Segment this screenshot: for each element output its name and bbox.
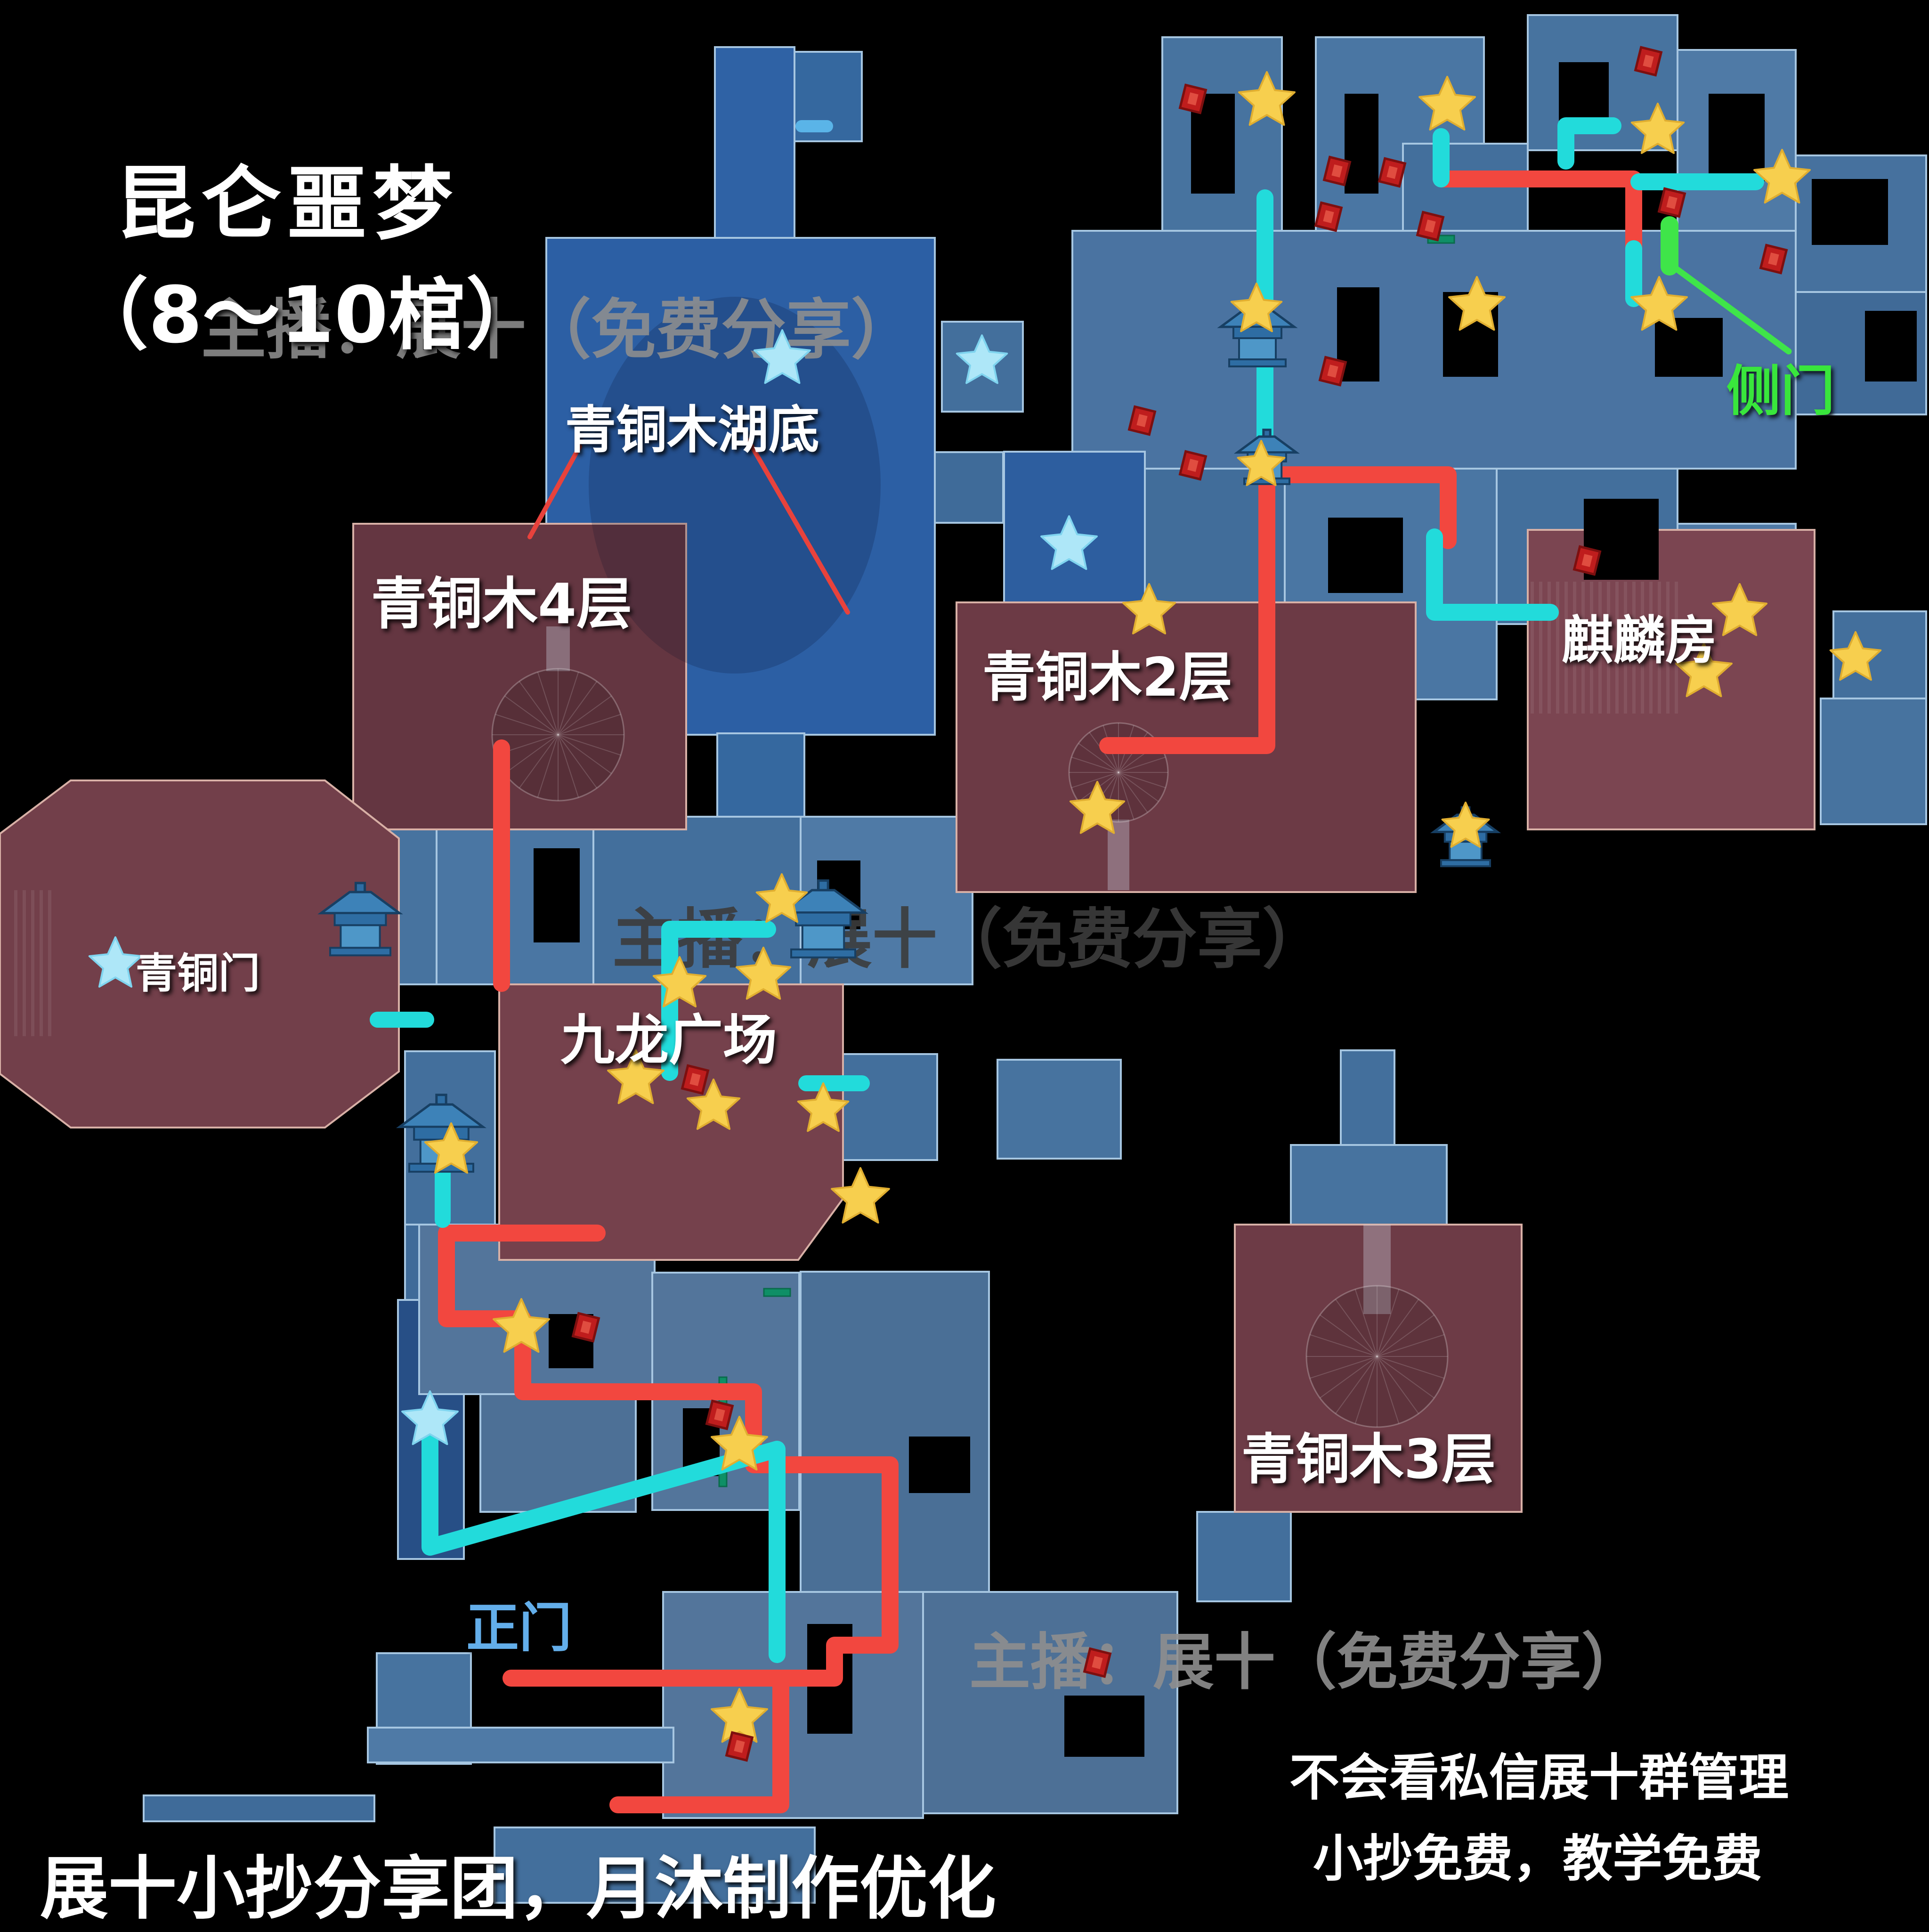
map-room <box>368 1728 673 1762</box>
map-hole <box>1709 94 1765 181</box>
label-bronze-wood-floor3: 青铜木3层 <box>1241 1416 1496 1494</box>
map-hole <box>1655 318 1723 377</box>
label-main-gate: 正门 <box>466 1585 572 1662</box>
map-room <box>1197 1512 1291 1601</box>
pagoda-eave <box>335 913 386 925</box>
pagoda-eave <box>796 913 851 925</box>
footer-notice-line2: 小抄免费，教学免费 <box>1313 1818 1762 1891</box>
texture-stripe <box>1548 582 1551 714</box>
map-hole <box>1345 94 1378 194</box>
map-room <box>1291 1145 1447 1225</box>
label-bronze-wood-lakebed: 青铜木湖底 <box>565 389 819 463</box>
pagoda-body <box>340 925 380 948</box>
map-guide-canvas: 主播：展十（免费分享）主播：展十（免费分享）主播：展十（免费分享） 昆仑噩梦 （… <box>0 0 1929 1929</box>
texture-stripe <box>1539 582 1542 714</box>
map-room <box>715 47 794 264</box>
texture-stripe <box>23 890 26 1036</box>
map-room <box>1821 698 1926 824</box>
page-subtitle-coffin-range: （8～10棺） <box>71 252 543 365</box>
texture-stripe <box>40 890 43 1036</box>
watermark-text: 主播：展十（免费分享） <box>969 1626 1643 1698</box>
map-hole <box>1064 1696 1144 1757</box>
map-hole <box>1559 62 1609 125</box>
footer-notice-line1: 不会看私信展十群管理 <box>1289 1737 1789 1810</box>
map-room <box>717 733 804 823</box>
door-marker-icon <box>764 1289 790 1296</box>
map-room <box>144 1795 374 1821</box>
label-side-gate: 侧门 <box>1726 348 1835 426</box>
map-hole <box>534 848 580 942</box>
pagoda-base <box>791 950 855 958</box>
map-hole <box>1865 311 1917 382</box>
texture-stripe <box>31 890 34 1036</box>
pagoda-body <box>1239 338 1276 359</box>
watermark-text: 主播：展十（免费分享） <box>612 901 1327 977</box>
map-room <box>935 452 1003 523</box>
pagoda-base <box>1441 860 1490 866</box>
map-hole <box>1812 179 1888 245</box>
footer-credit: 展十小抄分享团，月沐制作优化 <box>40 1833 996 1932</box>
label-nine-dragon-plaza: 九龙广场 <box>560 997 777 1075</box>
label-qilin-room: 麒麟房 <box>1562 598 1717 674</box>
label-bronze-wood-floor4: 青铜木4层 <box>371 559 632 639</box>
label-bronze-wood-floor2: 青铜木2层 <box>982 634 1232 711</box>
map-room <box>997 1060 1121 1159</box>
map-hole <box>1328 518 1403 593</box>
pagoda-base <box>330 948 390 955</box>
page-title: 昆仑噩梦 <box>115 139 458 255</box>
map-room <box>1528 530 1815 829</box>
texture-stripe <box>1531 582 1534 714</box>
pagoda-base <box>1229 359 1286 366</box>
pagoda-eave <box>414 1127 469 1140</box>
pagoda-body <box>802 925 844 950</box>
map-hole <box>909 1437 970 1493</box>
texture-stripe <box>1556 582 1559 714</box>
texture-stripe <box>48 890 51 1036</box>
texture-stripe <box>14 890 17 1036</box>
label-bronze-gate: 青铜门 <box>136 940 260 1000</box>
map-room <box>1341 1050 1394 1145</box>
